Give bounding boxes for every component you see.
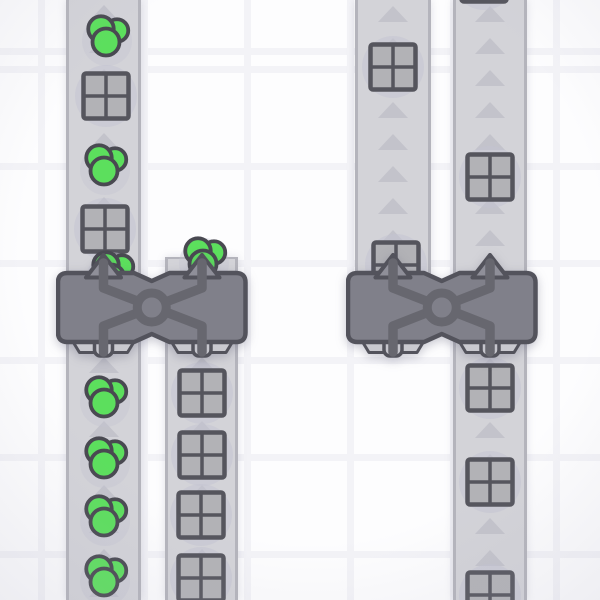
belt-item-square-crate	[74, 64, 138, 128]
balancer-machine[interactable]	[56, 250, 248, 362]
belt-direction-arrow-icon	[475, 422, 505, 438]
belt-item-square-crate	[361, 35, 425, 99]
factory-viewport	[0, 0, 600, 600]
belt-item-circle-cluster	[73, 364, 137, 428]
belt-item-square-crate	[170, 423, 234, 487]
belt-item-square-crate	[458, 145, 522, 209]
belt-item-square-crate	[452, 0, 516, 11]
belt-direction-arrow-icon	[378, 6, 408, 22]
belt-direction-arrow-icon	[475, 38, 505, 54]
belt-item-square-crate	[458, 450, 522, 514]
belt-direction-arrow-icon	[378, 166, 408, 182]
belt-item-square-crate	[458, 563, 522, 600]
balancer-machine[interactable]	[346, 250, 538, 362]
machine-center-ring	[427, 293, 456, 322]
belt-item-circle-cluster	[73, 425, 137, 489]
belt-item-square-crate	[170, 361, 234, 425]
belt-direction-arrow-icon	[378, 134, 408, 150]
machine-center-ring	[137, 293, 166, 322]
belt-item-circle-cluster	[75, 3, 139, 67]
belt-direction-arrow-icon	[475, 70, 505, 86]
belt-item-circle-cluster	[73, 543, 137, 600]
belt-direction-arrow-icon	[475, 518, 505, 534]
belt-direction-arrow-icon	[475, 102, 505, 118]
belt-direction-arrow-icon	[378, 102, 408, 118]
belt-item-circle-cluster	[73, 483, 137, 547]
belt-item-square-crate	[169, 483, 233, 547]
belt-item-square-crate	[169, 546, 233, 600]
belt-direction-arrow-icon	[378, 198, 408, 214]
belt-item-square-crate	[458, 356, 522, 420]
belt-direction-arrow-icon	[475, 230, 505, 246]
belt-item-circle-cluster	[73, 132, 137, 196]
